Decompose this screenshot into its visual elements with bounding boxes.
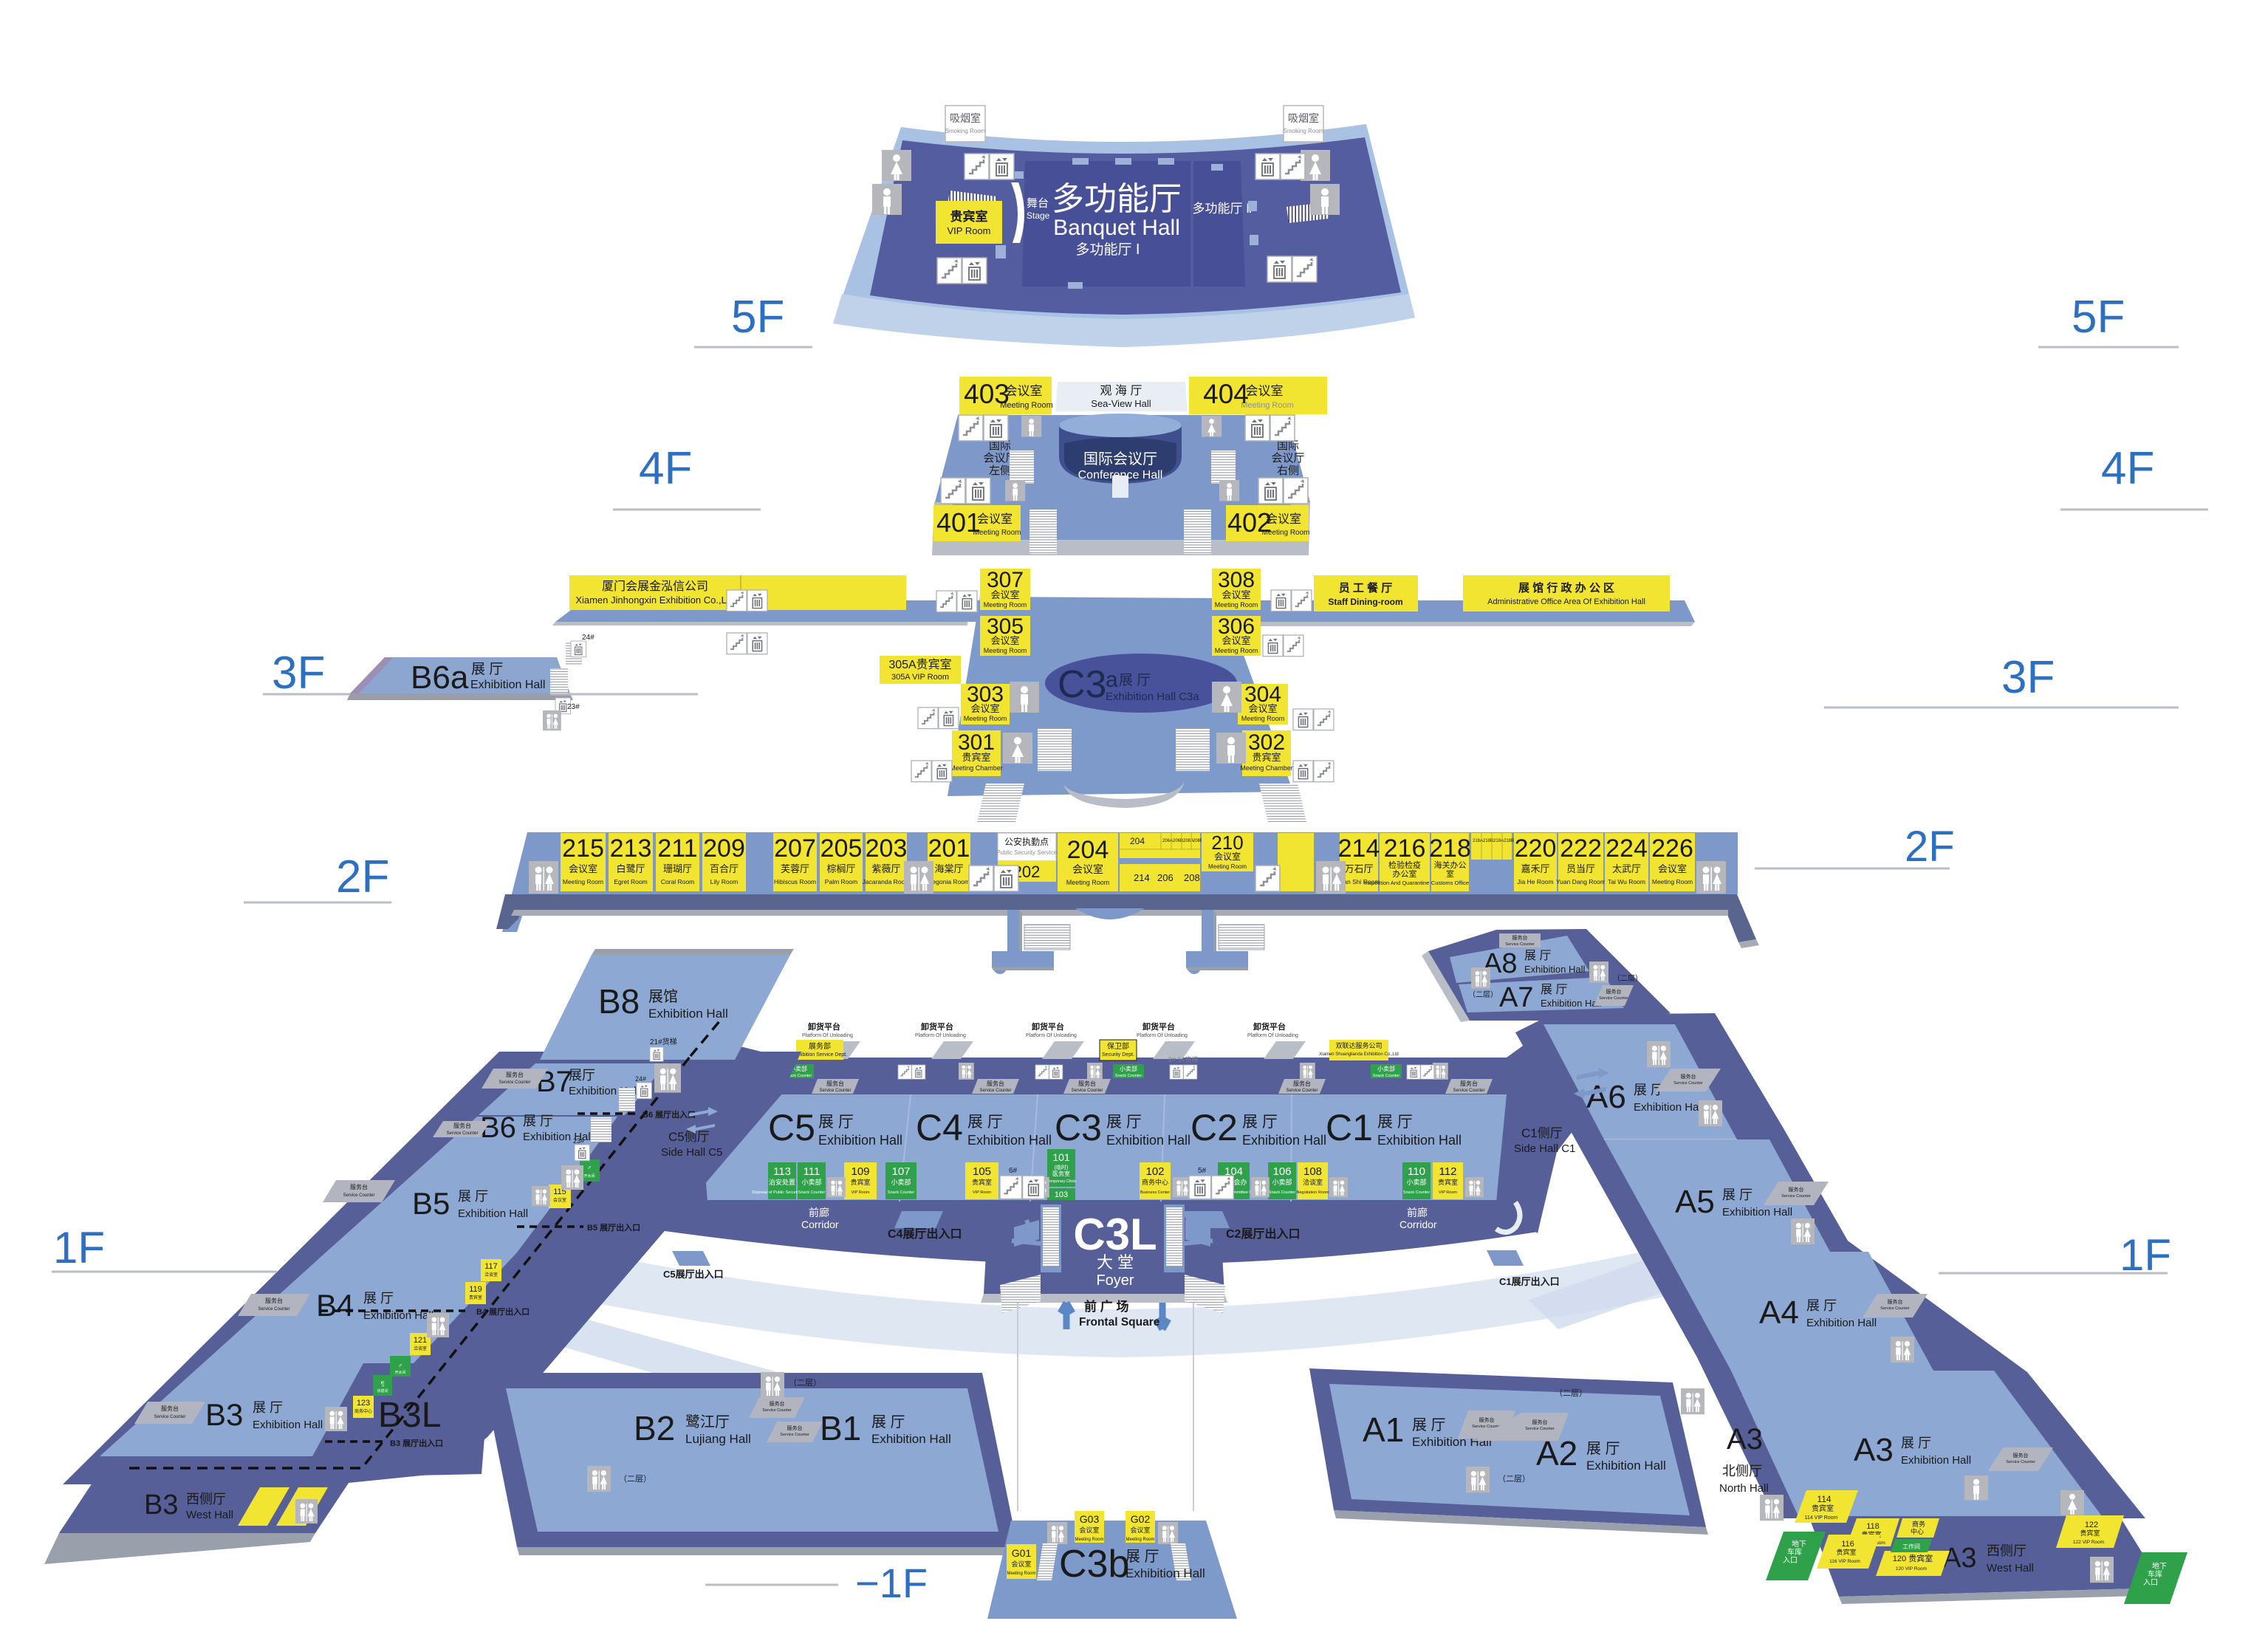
svg-text:Platform Of Unloading: Platform Of Unloading (915, 1033, 966, 1038)
svg-text:Exhibition Hall: Exhibition Hall (458, 1207, 528, 1220)
svg-text:小卖部: 小卖部 (801, 1178, 821, 1186)
svg-text:Meeting Chamber: Meeting Chamber (950, 764, 1003, 772)
svg-text:多功能厅: 多功能厅 (1052, 181, 1182, 217)
svg-text:Corridor: Corridor (1399, 1219, 1437, 1230)
svg-text:卸货平台: 卸货平台 (1142, 1021, 1175, 1032)
svg-text:服务台: 服务台 (1789, 1186, 1804, 1193)
svg-text:Snack Counter: Snack Counter (888, 1190, 915, 1195)
svg-text:会议室: 会议室 (1072, 863, 1103, 875)
svg-text:服务台: 服务台 (1293, 1080, 1311, 1087)
svg-text:贵宾室: 贵宾室 (469, 1295, 482, 1300)
svg-text:119: 119 (469, 1285, 482, 1294)
svg-text:展 厅: 展 厅 (1125, 1549, 1159, 1565)
svg-text:5F: 5F (731, 292, 784, 343)
svg-text:111: 111 (804, 1165, 820, 1178)
svg-text:Business Center: Business Center (1140, 1190, 1171, 1195)
svg-text:122 VIP Room: 122 VIP Room (2073, 1540, 2104, 1545)
svg-text:204: 204 (1130, 836, 1145, 846)
svg-text:洽谈室: 洽谈室 (484, 1272, 498, 1278)
svg-text:服务台: 服务台 (453, 1122, 471, 1129)
svg-text:右侧: 右侧 (1277, 465, 1299, 477)
svg-text:Egret Room: Egret Room (614, 878, 647, 885)
svg-text:北侧厅: 北侧厅 (1722, 1464, 1762, 1478)
svg-text:Service Counter: Service Counter (1781, 1194, 1811, 1199)
svg-text:Meeting Room: Meeting Room (973, 529, 1021, 537)
svg-text:Meeting Room: Meeting Room (1125, 1538, 1154, 1542)
svg-text:展 厅: 展 厅 (471, 662, 503, 677)
svg-text:Exhibition Hall: Exhibition Hall (470, 679, 545, 691)
svg-text:太武厅: 太武厅 (1612, 863, 1641, 874)
svg-text:116: 116 (1841, 1540, 1854, 1549)
svg-text:B3L: B3L (378, 1396, 441, 1435)
svg-text:208: 208 (1184, 872, 1200, 883)
svg-text:会议室: 会议室 (1130, 1526, 1150, 1534)
svg-text:Service Counter: Service Counter (446, 1131, 478, 1136)
svg-text:C5侧厅: C5侧厅 (668, 1130, 710, 1144)
svg-text:Meeting Room: Meeting Room (1215, 601, 1258, 609)
svg-text:Snack Counter: Snack Counter (798, 1190, 826, 1195)
svg-text:G03: G03 (1080, 1513, 1100, 1525)
svg-text:211: 211 (657, 834, 697, 863)
svg-text:洽谈室: 洽谈室 (1303, 1178, 1323, 1186)
svg-text:West Hall: West Hall (1987, 1562, 2034, 1574)
svg-text:122: 122 (2085, 1521, 2098, 1529)
svg-text:A3: A3 (1854, 1432, 1894, 1468)
svg-text:Begonia Room: Begonia Room (928, 878, 970, 885)
svg-text:入口: 入口 (1783, 1557, 1798, 1565)
svg-text:Meeting Room: Meeting Room (964, 715, 1007, 722)
svg-text:Security Dept.: Security Dept. (1102, 1052, 1134, 1058)
svg-text:员当厅: 员当厅 (1566, 863, 1595, 874)
svg-text:伏缮间: 伏缮间 (377, 1388, 388, 1394)
svg-text:VIP Room: VIP Room (852, 1190, 870, 1195)
svg-text:服务台: 服务台 (987, 1080, 1004, 1087)
svg-text:222: 222 (1560, 834, 1602, 863)
svg-text:会议室: 会议室 (1079, 1526, 1099, 1534)
svg-text:Snack Counter: Snack Counter (1269, 1190, 1296, 1195)
svg-text:展 厅: 展 厅 (523, 1114, 553, 1128)
svg-text:卸货平台: 卸货平台 (1253, 1021, 1286, 1032)
svg-text:109: 109 (851, 1165, 869, 1178)
svg-text:VIP Room: VIP Room (1439, 1190, 1457, 1195)
svg-text:会议室: 会议室 (1246, 384, 1284, 398)
svg-text:Exhibition Hall C3a: Exhibition Hall C3a (1106, 690, 1199, 703)
svg-text:展务部: 展务部 (809, 1041, 831, 1051)
svg-text:¶: ¶ (381, 1380, 385, 1388)
svg-text:展 厅: 展 厅 (1806, 1298, 1837, 1313)
svg-text:服务台: 服务台 (350, 1183, 368, 1190)
svg-text:会议室: 会议室 (569, 863, 597, 874)
svg-text:万石厅: 万石厅 (1344, 863, 1373, 874)
svg-text:贵宾室: 贵宾室 (1438, 1178, 1458, 1186)
svg-text:114 VIP Room: 114 VIP Room (1805, 1515, 1838, 1521)
svg-text:107: 107 (891, 1165, 910, 1178)
svg-text:Platform Of Unloading: Platform Of Unloading (1026, 1033, 1077, 1038)
svg-text:201: 201 (928, 834, 970, 863)
svg-text:B6 展厅出入口: B6 展厅出入口 (643, 1109, 696, 1120)
svg-text:服务台: 服务台 (2013, 1452, 2029, 1459)
svg-text:Service Counter: Service Counter (1286, 1089, 1318, 1093)
svg-text:服务台: 服务台 (1681, 1073, 1696, 1080)
svg-text:Service Counter: Service Counter (1071, 1089, 1103, 1093)
svg-text:Exhibition Hall: Exhibition Hall (1524, 964, 1585, 975)
svg-text:3F: 3F (2001, 652, 2055, 703)
svg-text:服务台: 服务台 (1606, 988, 1622, 995)
svg-text:服务台: 服务台 (1078, 1080, 1096, 1087)
svg-text:123: 123 (357, 1399, 370, 1408)
svg-text:C3L: C3L (1073, 1210, 1157, 1259)
svg-text:C1展厅出入口: C1展厅出入口 (1499, 1276, 1560, 1287)
svg-text:4F: 4F (639, 443, 692, 494)
svg-text:会议室: 会议室 (1214, 851, 1241, 862)
svg-text:B8: B8 (598, 982, 640, 1021)
svg-text:贵宾室: 贵宾室 (1252, 752, 1281, 763)
svg-text:展 厅: 展 厅 (1722, 1187, 1753, 1202)
svg-text:B4 展厅出入口: B4 展厅出入口 (476, 1306, 530, 1317)
svg-text:A7: A7 (1499, 982, 1533, 1013)
svg-text:Platform Of Unloading: Platform Of Unloading (1137, 1033, 1188, 1038)
svg-text:Meeting Room: Meeting Room (1241, 401, 1294, 410)
svg-text:Meeting Room: Meeting Room (1000, 401, 1053, 410)
svg-text:Banquet Hall: Banquet Hall (1053, 216, 1180, 240)
svg-text:前廊: 前廊 (1407, 1207, 1428, 1219)
svg-text:218: 218 (1429, 834, 1471, 863)
svg-text:Xiamen Shuanglianda Exhibition: Xiamen Shuanglianda Exhibition Co.,Ltd (1319, 1052, 1398, 1057)
svg-text:Administrative Office Area Of: Administrative Office Area Of Exhibition… (1487, 597, 1645, 606)
svg-text:5F: 5F (2072, 292, 2125, 343)
svg-text:226: 226 (1651, 834, 1693, 863)
svg-text:Negotiation Room: Negotiation Room (1296, 1190, 1329, 1195)
svg-text:112: 112 (1439, 1165, 1457, 1178)
svg-text:车库: 车库 (2148, 1569, 2162, 1579)
svg-text:214: 214 (1134, 872, 1150, 883)
svg-text:Service Counter: Service Counter (258, 1307, 289, 1312)
svg-text:209: 209 (703, 834, 745, 863)
svg-text:213: 213 (610, 834, 652, 863)
svg-text:会议室: 会议室 (990, 589, 1019, 600)
svg-text:嘉禾厅: 嘉禾厅 (1521, 863, 1549, 874)
svg-text:A4: A4 (1759, 1295, 1799, 1331)
svg-text:小卖部: 小卖部 (1120, 1065, 1137, 1072)
svg-text:Smoking Room: Smoking Room (1284, 128, 1324, 134)
svg-text:服务台: 服务台 (826, 1080, 844, 1087)
svg-text:车库: 车库 (1787, 1547, 1802, 1557)
svg-text:展 厅: 展 厅 (253, 1400, 283, 1415)
svg-text:Exhibition Hall: Exhibition Hall (1242, 1133, 1326, 1148)
svg-text:（二层）: （二层） (1498, 1474, 1530, 1484)
svg-text:Exhibition Hall: Exhibition Hall (1806, 1317, 1877, 1329)
svg-text:Exhibition Hall: Exhibition Hall (1586, 1459, 1666, 1473)
svg-text:Service Counter: Service Counter (2006, 1460, 2035, 1464)
svg-text:C3: C3 (1058, 663, 1106, 706)
svg-text:Meeting Room: Meeting Room (1241, 715, 1285, 722)
svg-text:C3: C3 (1055, 1107, 1102, 1148)
svg-text:Frontal Square: Frontal Square (1079, 1316, 1160, 1329)
svg-text:Coral Room: Coral Room (661, 878, 694, 885)
svg-text:B4: B4 (316, 1288, 354, 1323)
svg-text:Platform Of Unloading: Platform Of Unloading (802, 1033, 853, 1038)
svg-text:地下: 地下 (2152, 1561, 2167, 1571)
svg-text:展 厅: 展 厅 (458, 1189, 488, 1204)
svg-text:108: 108 (1303, 1165, 1322, 1178)
svg-text:中心: 中心 (1911, 1527, 1924, 1535)
svg-text:Service Counter: Service Counter (1673, 1081, 1703, 1086)
svg-text:C2: C2 (1190, 1107, 1238, 1148)
svg-text:入口: 入口 (2143, 1579, 2158, 1587)
svg-text:保卫部: 保卫部 (1107, 1041, 1129, 1051)
svg-text:Exhibition Hall: Exhibition Hall (871, 1432, 951, 1446)
svg-text:North Hall: North Hall (1719, 1482, 1769, 1495)
svg-text:Yuan Dang Room: Yuan Dang Room (1556, 878, 1606, 885)
svg-text:贵宾室: 贵宾室 (950, 209, 988, 224)
svg-text:服务台: 服务台 (1512, 934, 1528, 941)
svg-text:C1: C1 (1326, 1107, 1373, 1148)
svg-text:210: 210 (1211, 832, 1243, 854)
svg-text:VIP Room: VIP Room (973, 1190, 991, 1195)
svg-text:220: 220 (1515, 834, 1557, 863)
svg-text:204: 204 (1067, 836, 1109, 864)
svg-text:室: 室 (1446, 868, 1454, 879)
svg-text:Service Counter: Service Counter (1505, 942, 1535, 947)
svg-text:公安执勤点: 公安执勤点 (1004, 836, 1049, 847)
svg-text:24#: 24# (582, 634, 595, 642)
svg-text:B6a: B6a (411, 659, 469, 696)
svg-text:Exhibition Hall: Exhibition Hall (1634, 1101, 1704, 1114)
svg-text:B3: B3 (205, 1397, 243, 1432)
svg-text:Service Counter: Service Counter (819, 1089, 851, 1093)
svg-text:Side Hall C5: Side Hall C5 (661, 1146, 722, 1159)
svg-text:卸货平台: 卸货平台 (808, 1021, 840, 1032)
svg-text:Lily Room: Lily Room (710, 878, 739, 885)
svg-text:观 海 厅: 观 海 厅 (1100, 384, 1142, 397)
svg-text:116 VIP Room: 116 VIP Room (1829, 1559, 1860, 1564)
svg-text:贵宾室: 贵宾室 (1812, 1504, 1834, 1513)
svg-text:2F: 2F (1905, 823, 1955, 871)
svg-text:芙蓉厅: 芙蓉厅 (781, 863, 809, 874)
svg-text:会议室: 会议室 (1248, 703, 1277, 714)
svg-text:展 厅: 展 厅 (1586, 1441, 1620, 1457)
svg-text:服务台: 服务台 (770, 1400, 785, 1407)
svg-text:展馆: 展馆 (648, 988, 678, 1005)
svg-text:110: 110 (1408, 1165, 1425, 1178)
svg-text:G02: G02 (1131, 1513, 1151, 1525)
svg-text:224: 224 (1606, 834, 1648, 863)
svg-text:大 堂: 大 堂 (1097, 1253, 1134, 1272)
svg-text:Exhibition Hall: Exhibition Hall (1125, 1566, 1205, 1580)
svg-text:前廊: 前廊 (809, 1207, 829, 1219)
svg-text:会议室: 会议室 (1222, 589, 1250, 600)
svg-text:215: 215 (562, 834, 604, 863)
svg-text:展 厅: 展 厅 (1377, 1114, 1413, 1131)
svg-text:♂: ♂ (398, 1362, 403, 1369)
svg-text:（二层）: （二层） (1468, 990, 1498, 999)
svg-text:23#: 23# (573, 1137, 584, 1145)
svg-text:Corridor: Corridor (801, 1219, 839, 1230)
svg-text:207: 207 (774, 834, 816, 863)
svg-text:前 广 场: 前 广 场 (1084, 1299, 1128, 1314)
svg-text:Meeting Room: Meeting Room (1066, 879, 1110, 886)
svg-text:Xiamen Jinhongxin Exhibition C: Xiamen Jinhongxin Exhibition Co.,Ltd (575, 594, 734, 606)
svg-text:Service Counter: Service Counter (1525, 1427, 1555, 1431)
svg-text:Snack Counter: Snack Counter (1373, 1074, 1400, 1078)
svg-text:B5 展厅出入口: B5 展厅出入口 (587, 1222, 640, 1233)
svg-text:B3: B3 (144, 1490, 178, 1521)
svg-text:208A: 208A (1183, 839, 1193, 843)
svg-text:服务台: 服务台 (1460, 1080, 1478, 1087)
svg-text:Tai Wu Room: Tai Wu Room (1608, 878, 1645, 885)
svg-text:Meeting Room: Meeting Room (1215, 647, 1258, 654)
svg-text:G01: G01 (1012, 1547, 1032, 1559)
svg-text:Side Hall C1: Side Hall C1 (1514, 1142, 1575, 1155)
svg-text:−1F: −1F (855, 1560, 928, 1606)
svg-text:展 厅: 展 厅 (818, 1114, 854, 1131)
svg-text:103: 103 (1055, 1190, 1068, 1199)
svg-text:102: 102 (1145, 1165, 1164, 1178)
svg-text:A3: A3 (1942, 1543, 1976, 1574)
svg-text:A5: A5 (1675, 1184, 1715, 1220)
svg-text:Service Counter: Service Counter (762, 1408, 792, 1413)
svg-text:办公室: 办公室 (1393, 868, 1417, 879)
svg-text:A1: A1 (1363, 1411, 1404, 1449)
svg-text:6#: 6# (1009, 1167, 1018, 1175)
svg-text:多功能厅 Ⅰ: 多功能厅 Ⅰ (1076, 241, 1140, 258)
svg-text:服务台: 服务台 (1479, 1416, 1495, 1423)
svg-text:商务: 商务 (1912, 1520, 1925, 1528)
svg-text:214: 214 (1338, 834, 1380, 863)
svg-text:2F: 2F (336, 851, 389, 902)
svg-text:Meeting Chamber: Meeting Chamber (1240, 764, 1293, 772)
svg-text:205: 205 (820, 834, 863, 863)
svg-text:305A贵宾室: 305A贵宾室 (888, 658, 951, 671)
svg-text:A3: A3 (1727, 1423, 1763, 1456)
svg-text:贵宾室: 贵宾室 (1836, 1548, 1856, 1556)
svg-text:西侧厅: 西侧厅 (186, 1492, 226, 1507)
svg-text:Service Counter: Service Counter (780, 1433, 809, 1437)
svg-text:Service Counter: Service Counter (979, 1089, 1011, 1093)
svg-text:C3b: C3b (1059, 1543, 1129, 1586)
svg-text:会议室: 会议室 (1222, 635, 1250, 646)
svg-text:白鹭厅: 白鹭厅 (616, 863, 645, 874)
svg-text:小卖部: 小卖部 (1272, 1178, 1292, 1186)
svg-text:West Hall: West Hall (186, 1509, 233, 1521)
svg-text:展 厅: 展 厅 (1412, 1417, 1446, 1433)
svg-text:（二层）: （二层） (1613, 974, 1642, 983)
svg-text:218B: 218B (1504, 839, 1514, 843)
svg-text:开水间: 开水间 (394, 1370, 405, 1375)
svg-text:双联达服务公司: 双联达服务公司 (1335, 1041, 1382, 1049)
svg-text:卸货平台: 卸货平台 (1032, 1021, 1064, 1032)
svg-text:多功能厅 Ⅱ: 多功能厅 Ⅱ (1192, 202, 1252, 216)
svg-text:会议室: 会议室 (1658, 863, 1687, 874)
svg-text:C5展厅出入口: C5展厅出入口 (663, 1269, 724, 1280)
svg-text:B1: B1 (820, 1409, 861, 1447)
svg-text:小卖部: 小卖部 (1377, 1065, 1395, 1072)
svg-text:会议室: 会议室 (553, 1197, 566, 1203)
svg-text:Sea-View Hall: Sea-View Hall (1091, 398, 1151, 409)
svg-text:21#货梯: 21#货梯 (650, 1037, 677, 1046)
svg-text:3F: 3F (272, 648, 325, 699)
svg-text:101: 101 (1052, 1151, 1070, 1163)
svg-text:地下: 地下 (1792, 1539, 1806, 1549)
svg-text:员 工 餐 厅: 员 工 餐 厅 (1339, 581, 1393, 594)
svg-text:206: 206 (1157, 872, 1174, 883)
svg-text:305A VIP Room: 305A VIP Room (891, 673, 949, 682)
svg-text:海棠厅: 海棠厅 (934, 863, 963, 874)
svg-text:C2展厅出入口: C2展厅出入口 (1226, 1227, 1300, 1241)
svg-text:203: 203 (866, 834, 908, 863)
svg-text:Meeting Room: Meeting Room (563, 878, 603, 885)
svg-text:展 厅: 展 厅 (1524, 950, 1551, 962)
svg-text:Meeting Room: Meeting Room (984, 647, 1027, 654)
svg-text:开水间: 开水间 (583, 1173, 595, 1179)
svg-text:Exhibition Hall: Exhibition Hall (253, 1419, 323, 1431)
svg-text:C1侧厅: C1侧厅 (1521, 1126, 1563, 1140)
svg-text:百合厅: 百合厅 (710, 863, 739, 874)
svg-text:Staff Dining-room: Staff Dining-room (1328, 597, 1402, 607)
svg-text:会议室: 会议室 (1011, 1560, 1031, 1568)
svg-text:珊瑚厅: 珊瑚厅 (663, 863, 692, 874)
svg-text:♂: ♂ (587, 1164, 592, 1171)
svg-text:Service Counter: Service Counter (1880, 1306, 1910, 1311)
svg-text:展 厅: 展 厅 (1541, 984, 1567, 996)
svg-text:Platform Of Unloading: Platform Of Unloading (1247, 1033, 1298, 1038)
svg-text:Service Counter: Service Counter (498, 1080, 530, 1085)
svg-text:洽谈室: 洽谈室 (414, 1346, 427, 1351)
svg-text:贵宾室: 贵宾室 (850, 1178, 870, 1186)
svg-text:西侧厅: 西侧厅 (1987, 1543, 2026, 1558)
svg-text:208B: 208B (1193, 839, 1203, 843)
svg-text:展 厅: 展 厅 (1106, 1114, 1142, 1131)
svg-text:卸货平台: 卸货平台 (921, 1021, 953, 1032)
svg-text:贵宾室: 贵宾室 (972, 1178, 992, 1186)
svg-text:海关办公: 海关办公 (1434, 860, 1467, 870)
svg-text:小卖部: 小卖部 (1406, 1178, 1426, 1186)
svg-text:Exhibition Hall: Exhibition Hall (1901, 1454, 1971, 1467)
svg-text:Snack Counter: Snack Counter (1115, 1074, 1142, 1078)
svg-text:服务台: 服务台 (787, 1425, 803, 1431)
svg-text:展厅: 展厅 (569, 1068, 595, 1083)
svg-text:紫薇厅: 紫薇厅 (871, 863, 900, 874)
svg-text:会议室: 会议室 (990, 635, 1019, 646)
svg-text:Lujiang Hall: Lujiang Hall (685, 1432, 751, 1446)
svg-text:1F: 1F (53, 1223, 105, 1272)
svg-text:Exhibition Hall: Exhibition Hall (1106, 1133, 1190, 1148)
svg-text:Service Counter: Service Counter (154, 1415, 185, 1419)
svg-text:Foyer: Foyer (1096, 1272, 1134, 1289)
svg-text:商务中心: 商务中心 (354, 1408, 372, 1414)
svg-text:吸烟室: 吸烟室 (1288, 112, 1319, 124)
svg-text:a: a (1106, 668, 1118, 692)
svg-text:Service Counter: Service Counter (1453, 1089, 1484, 1093)
svg-text:Palm Room: Palm Room (825, 878, 857, 885)
svg-text:(临时): (临时) (1055, 1164, 1069, 1171)
svg-text:服务台: 服务台 (161, 1405, 179, 1412)
svg-text:工作间: 工作间 (1902, 1543, 1920, 1550)
svg-text:小卖部: 小卖部 (891, 1178, 911, 1186)
svg-text:Exhibition Hall: Exhibition Hall (1722, 1206, 1792, 1219)
svg-text:会议厅: 会议厅 (1271, 452, 1304, 465)
svg-text:医务室: 医务室 (1052, 1170, 1070, 1177)
svg-text:118: 118 (1866, 1522, 1880, 1531)
svg-text:Smoking Room: Smoking Room (945, 128, 986, 134)
svg-text:Meeting Room: Meeting Room (1007, 1572, 1035, 1576)
svg-text:服务台: 服务台 (1532, 1419, 1548, 1425)
svg-text:23#: 23# (567, 703, 580, 711)
svg-text:2# 1#货梯: 2# 1#货梯 (1168, 1055, 1199, 1063)
svg-text:B5: B5 (412, 1186, 450, 1221)
svg-text:Meeting Room: Meeting Room (1075, 1538, 1103, 1542)
svg-text:113: 113 (773, 1165, 791, 1178)
